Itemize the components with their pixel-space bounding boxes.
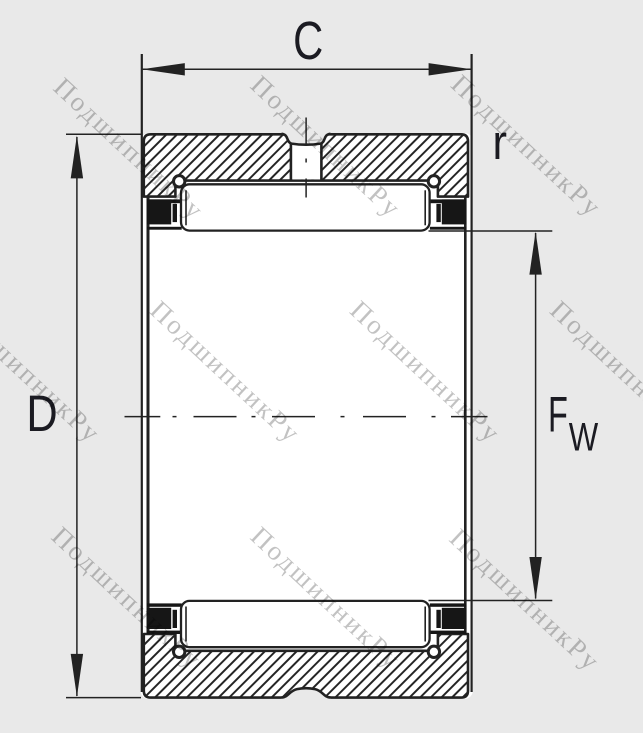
svg-text:W: W [569, 415, 599, 460]
svg-text:F: F [548, 386, 568, 442]
svg-text:C: C [293, 12, 323, 71]
